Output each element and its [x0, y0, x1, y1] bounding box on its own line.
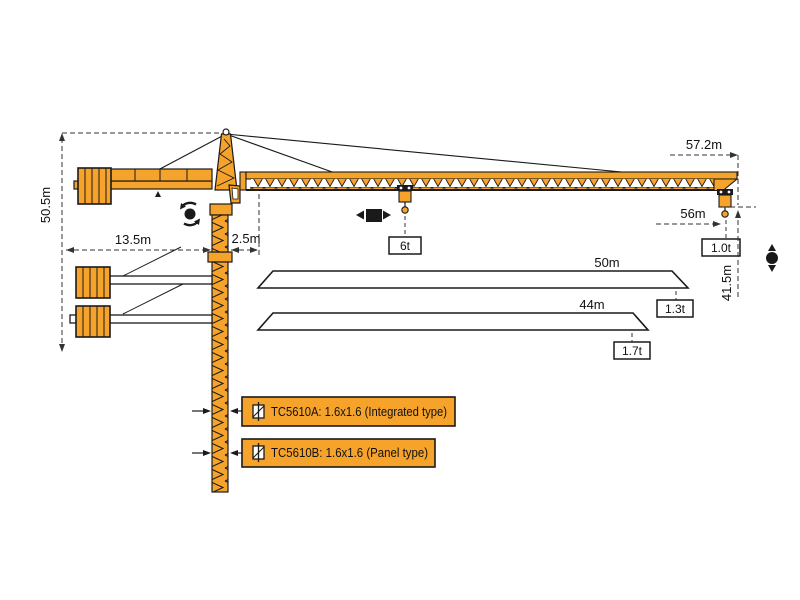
counterweight-option-1	[76, 247, 212, 298]
main-jib	[240, 172, 737, 191]
tip-load-50m-label: 1.3t	[665, 302, 686, 316]
hook-icon	[402, 207, 408, 213]
height-under-hook-label: 50.5m	[38, 187, 53, 223]
pendant-anchor-icon	[155, 191, 161, 197]
counter-jib-counterweight	[78, 168, 111, 204]
jib-length-44m-label: 44m	[579, 297, 604, 312]
model-label-tc5610a: TC5610A: 1.6x1.6 (Integrated type)	[192, 397, 455, 426]
trolley-travel-icon	[356, 209, 391, 222]
hoisting-icon	[766, 244, 778, 272]
tip-radius-label: 56m	[680, 206, 705, 221]
hoisting-height-label: 41.5m	[719, 265, 734, 301]
jib-option-50m: 50m 1.3t	[258, 255, 693, 317]
tip-load-label: 1.0t	[711, 241, 732, 255]
counter-jib-radius-label: 13.5m	[115, 232, 151, 247]
mast-section-icon	[253, 402, 264, 421]
max-capacity-label: 6t	[400, 239, 411, 253]
counter-jib	[74, 168, 212, 204]
dimension-tip-radius: 56m	[656, 206, 721, 227]
mid-trolley-hook: 6t	[389, 185, 421, 254]
crane-diagram-svg: 50.5m	[0, 0, 800, 600]
dimension-counter-jib-radius: 13.5m	[66, 232, 211, 253]
apex-point	[223, 129, 229, 135]
operator-cab	[229, 185, 240, 203]
jib-length-50m-label: 50m	[594, 255, 619, 270]
model-b-label: TC5610B: 1.6x1.6 (Panel type)	[271, 446, 428, 460]
tip-trolley-hook: 1.0t	[702, 189, 740, 256]
rear-offset-label: 2.5m	[232, 231, 261, 246]
hook-icon	[722, 211, 728, 217]
slewing-icon	[180, 203, 200, 225]
tip-load-44m-label: 1.7t	[622, 344, 643, 358]
max-radius-label: 57.2m	[686, 137, 722, 152]
jib-option-44m: 44m 1.7t	[258, 297, 650, 359]
mast-section-icon	[253, 443, 264, 462]
jib-tip	[714, 179, 737, 191]
model-a-label: TC5610A: 1.6x1.6 (Integrated type)	[271, 405, 447, 419]
crane-diagram: 50.5m	[0, 0, 800, 600]
